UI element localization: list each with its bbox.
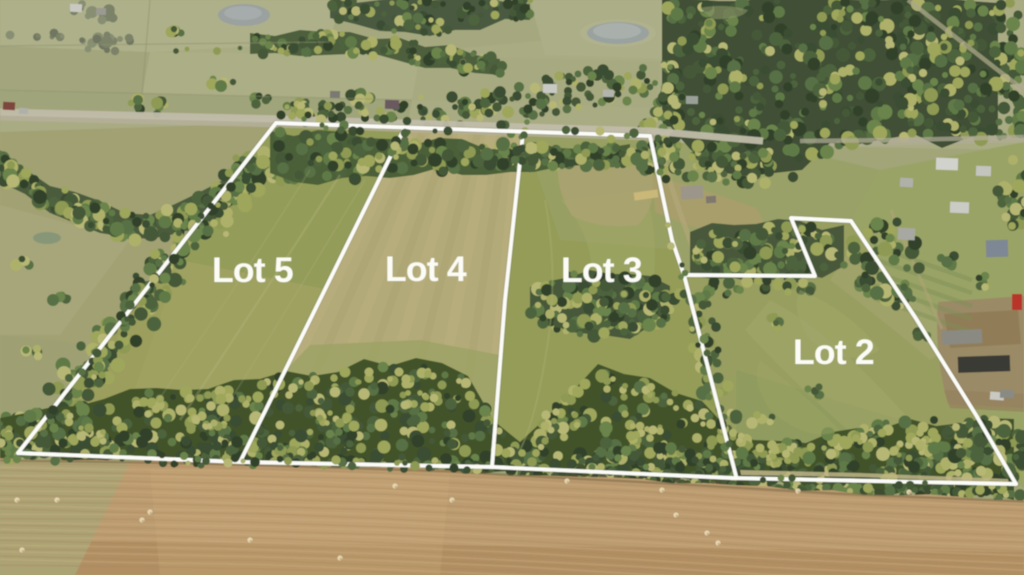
svg-text:Lot 3: Lot 3 [561, 250, 642, 290]
svg-text:Lot 5: Lot 5 [212, 250, 293, 290]
svg-text:Lot 4: Lot 4 [385, 249, 467, 289]
svg-text:Lot 2: Lot 2 [793, 332, 874, 372]
